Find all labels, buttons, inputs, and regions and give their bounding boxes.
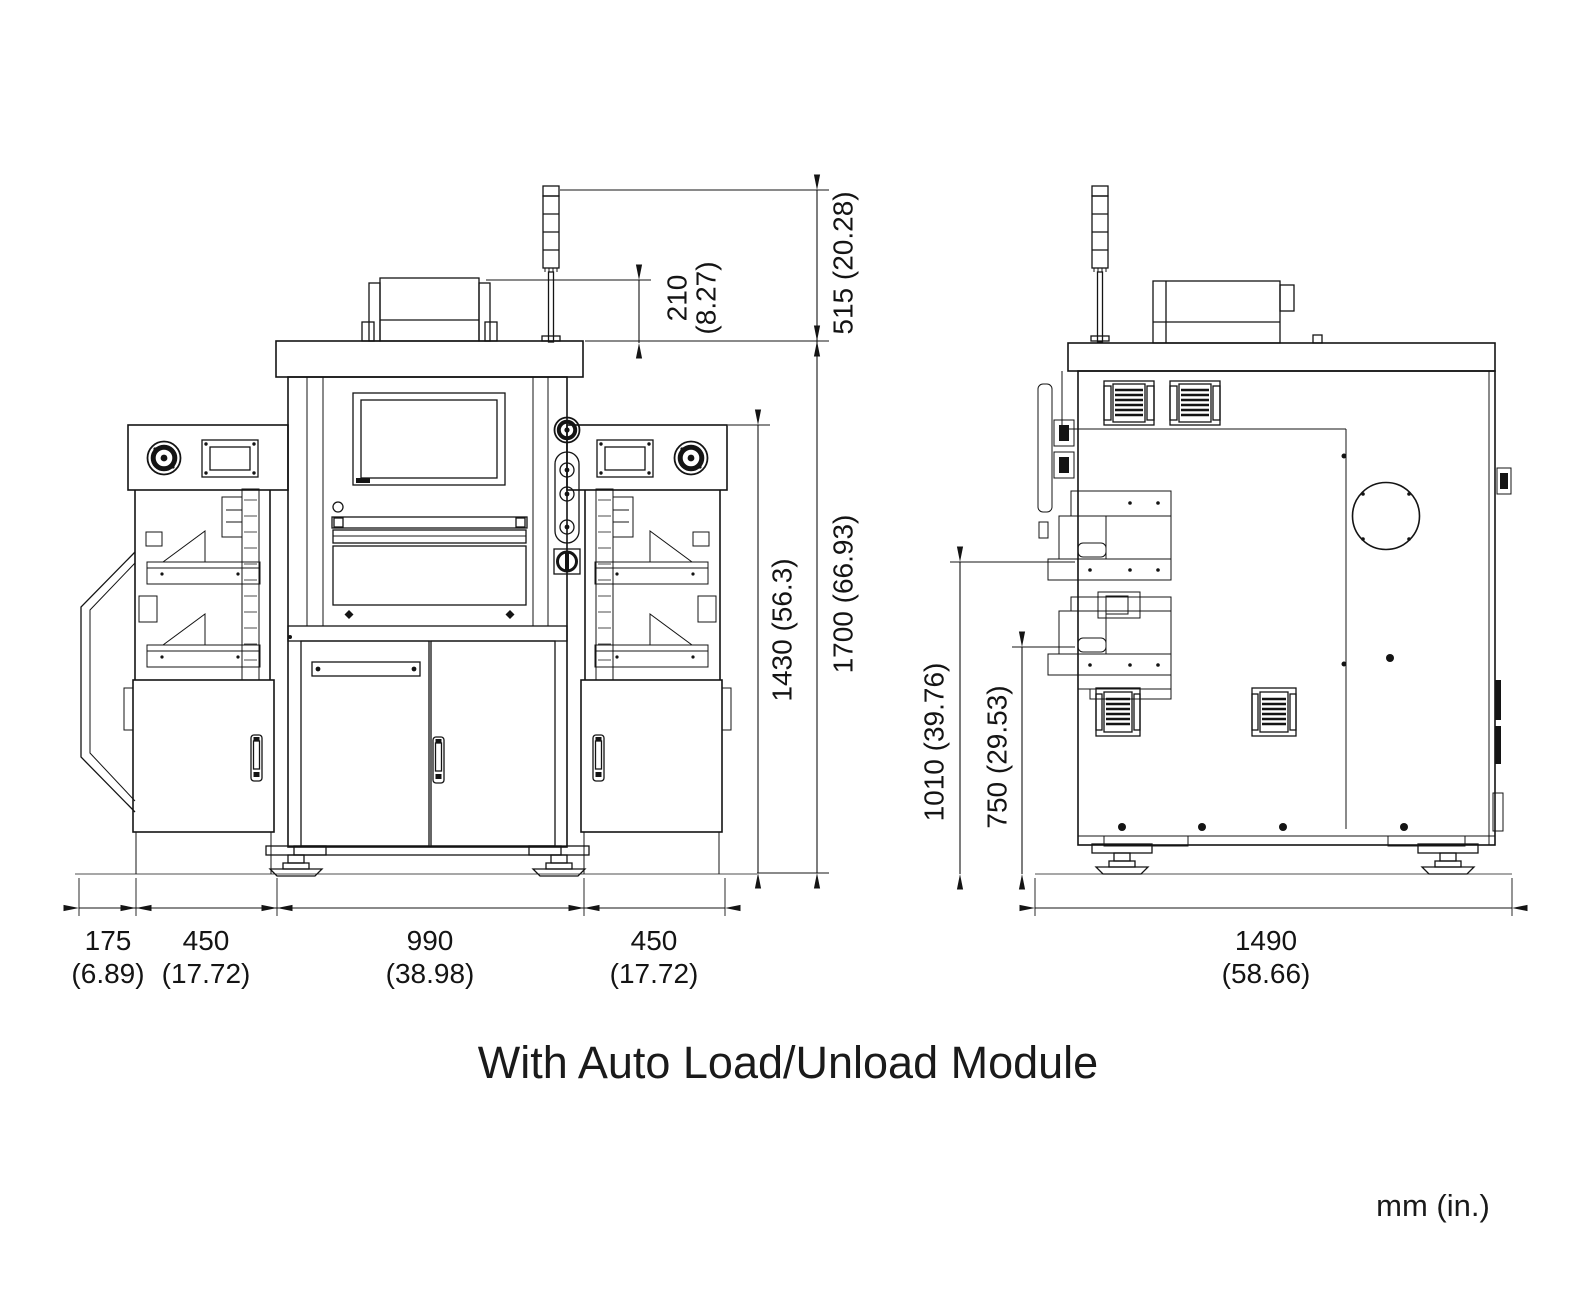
dim-label-body-in: (38.98) (386, 958, 475, 989)
display-panel (597, 440, 653, 477)
vent-grille-icon (1170, 381, 1220, 425)
door-handle-icon (433, 737, 444, 783)
magazine-stack (1038, 384, 1171, 699)
dim-label-left-module-in: (17.72) (162, 958, 251, 989)
cabinet-doors (288, 626, 567, 855)
drawing-title: With Auto Load/Unload Module (478, 1037, 1098, 1088)
circular-port (1353, 483, 1420, 550)
dim-label-body-mm: 990 (407, 925, 454, 956)
left-door (301, 641, 429, 846)
dim-label-depth-in: (58.66) (1222, 958, 1311, 989)
dim-label-chute-mm: 175 (85, 925, 132, 956)
tray-mechanism (595, 489, 716, 680)
side-view (1035, 186, 1512, 874)
tray-mechanism (139, 489, 260, 680)
upper-magazine (1039, 491, 1171, 580)
dim-label-left-module-mm: 450 (183, 925, 230, 956)
door-handle-icon (251, 735, 262, 781)
dim-label-module-height: 1430 (56.3) (767, 558, 798, 701)
dim-label-depth-mm: 1490 (1235, 925, 1297, 956)
main-body (266, 341, 589, 876)
dim-label-upper-magazine: 1010 (39.76) (919, 663, 950, 822)
units-note: mm (in.) (1376, 1188, 1490, 1223)
dim-label-signal-tower: 515 (20.28) (828, 191, 859, 334)
key-switch-icon (554, 549, 580, 574)
right-door (431, 641, 555, 846)
vent-grille-icon (1252, 688, 1296, 736)
signal-tower-icon (542, 186, 560, 342)
dim-label-right-module-mm: 450 (631, 925, 678, 956)
technical-drawing: 515 (20.28) 210 (8.27) 1430 (56.3) 1700 … (0, 0, 1576, 1301)
dim-label-chute-in: (6.89) (71, 958, 144, 989)
left-load-module (81, 425, 288, 874)
module-cabinet (581, 680, 722, 832)
leveling-foot-icon (529, 846, 589, 876)
leveling-foot-icon (266, 846, 326, 876)
door-handle-icon (593, 735, 604, 781)
dim-label-right-module-in: (17.72) (610, 958, 699, 989)
dimension-drawing-page: 515 (20.28) 210 (8.27) 1430 (56.3) 1700 … (0, 0, 1576, 1301)
cabinet-body (1062, 343, 1511, 846)
top-box (1153, 281, 1322, 343)
vent-grille-icon (1104, 381, 1154, 425)
lower-magazine (1048, 597, 1171, 699)
dim-label-lower-magazine: 750 (29.53) (982, 685, 1013, 828)
indicator-lamp (333, 502, 343, 512)
screw-icon (345, 610, 354, 619)
emergency-stop-icon (675, 442, 708, 475)
signal-tower-icon (1091, 186, 1109, 342)
side-dimensions (950, 562, 1512, 916)
right-unload-module (567, 425, 731, 874)
screw-icon (506, 610, 515, 619)
dim-label-overall-height: 1700 (66.93) (828, 515, 859, 674)
emergency-stop-icon (148, 442, 181, 475)
front-view (75, 186, 757, 876)
name-plate (312, 662, 420, 676)
dim-label-top-box-mm: 210 (662, 275, 693, 322)
display-panel (202, 440, 258, 477)
top-box (362, 278, 497, 341)
dim-label-top-box-in: (8.27) (691, 261, 722, 334)
leveling-foot-icon (1092, 844, 1152, 874)
vent-grille-icon (1096, 688, 1140, 736)
conveyor-window (332, 517, 527, 605)
monitor-screen (353, 393, 505, 485)
outfeed-chute (81, 552, 135, 812)
leveling-foot-icon (1418, 844, 1478, 874)
